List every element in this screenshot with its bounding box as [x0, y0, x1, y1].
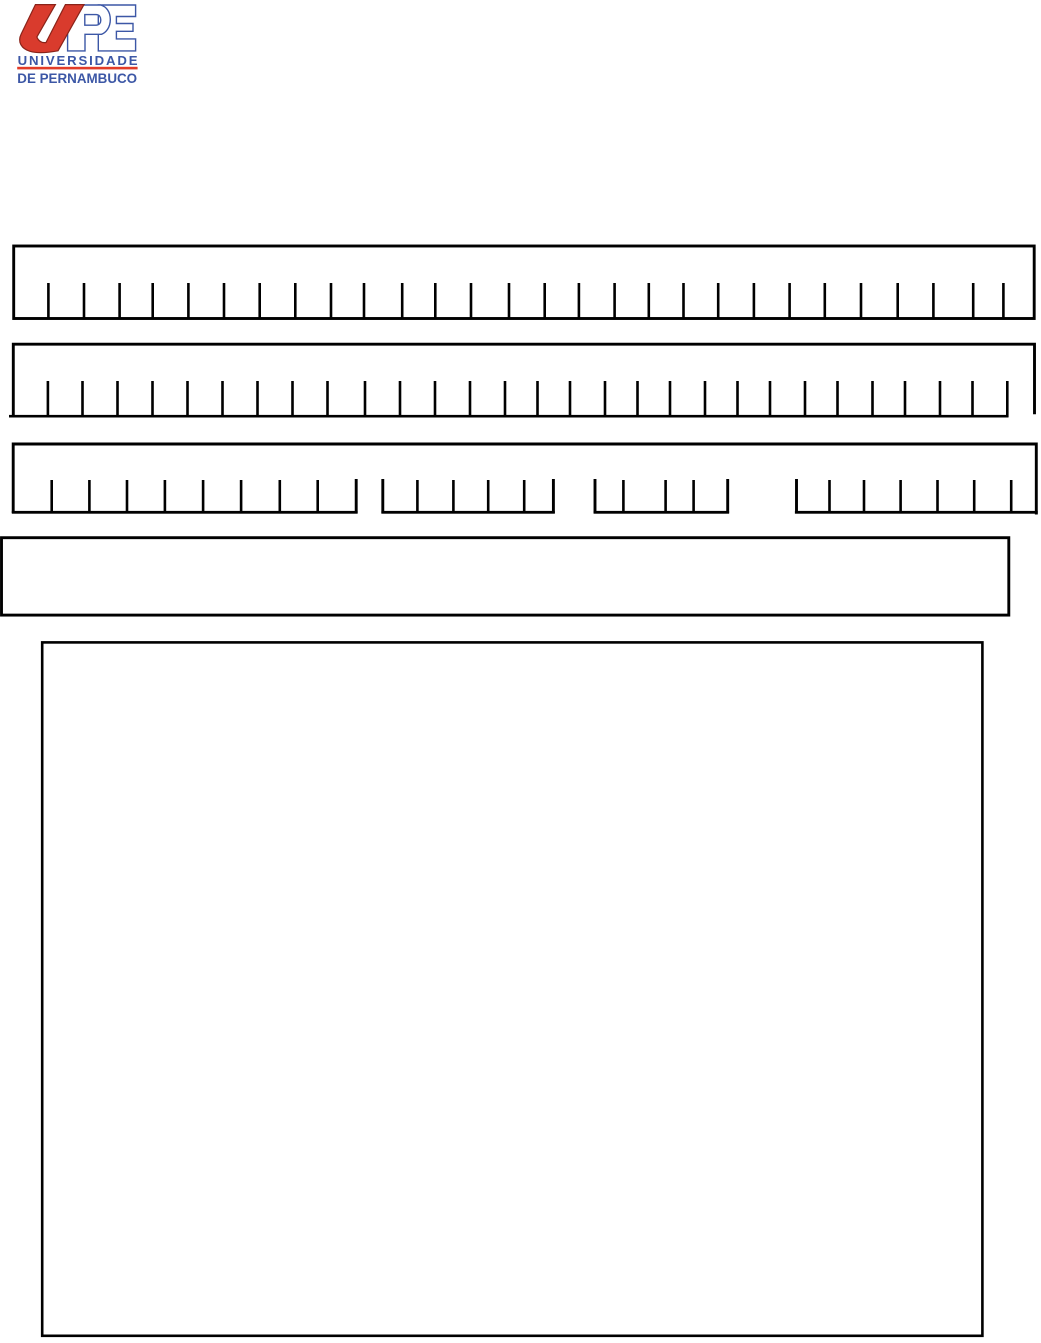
- svg-text:DE PERNAMBUCO: DE PERNAMBUCO: [17, 71, 137, 86]
- svg-text:UNIVERSIDADE: UNIVERSIDADE: [18, 53, 140, 68]
